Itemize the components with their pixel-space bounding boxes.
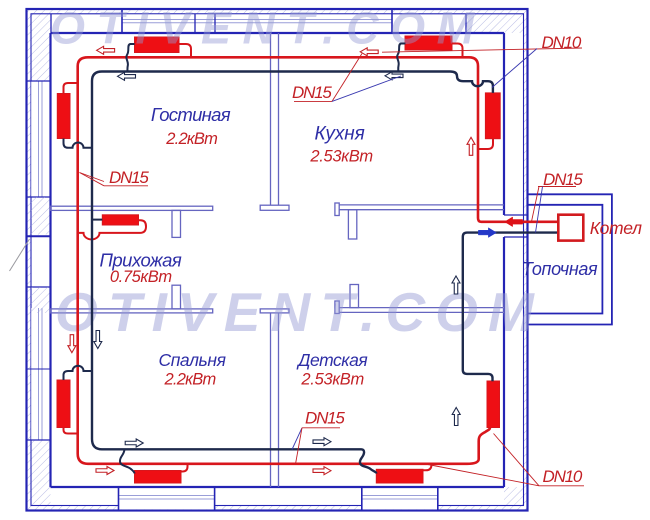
svg-text:Котел: Котел [590, 218, 642, 238]
svg-text:2.53кВт: 2.53кВт [309, 148, 373, 166]
svg-text:OTIVENT.COM: OTIVENT.COM [55, 281, 544, 343]
svg-text:0.75кВт: 0.75кВт [110, 268, 172, 286]
svg-text:2.2кВт: 2.2кВт [165, 130, 217, 148]
svg-text:Спальня: Спальня [158, 350, 225, 370]
svg-text:OTIVENT.COM: OTIVENT.COM [50, 3, 486, 54]
svg-text:Детская: Детская [296, 350, 367, 370]
svg-text:DN15: DN15 [109, 168, 149, 187]
svg-text:DN15: DN15 [292, 83, 332, 102]
svg-text:2.53кВт: 2.53кВт [300, 371, 364, 389]
svg-text:Гостиная: Гостиная [151, 104, 231, 125]
svg-text:Топочная: Топочная [522, 259, 598, 279]
svg-text:Кухня: Кухня [315, 124, 365, 145]
svg-text:DN10: DN10 [543, 467, 583, 486]
svg-text:DN15: DN15 [305, 409, 345, 428]
svg-text:2.2кВт: 2.2кВт [164, 370, 216, 388]
